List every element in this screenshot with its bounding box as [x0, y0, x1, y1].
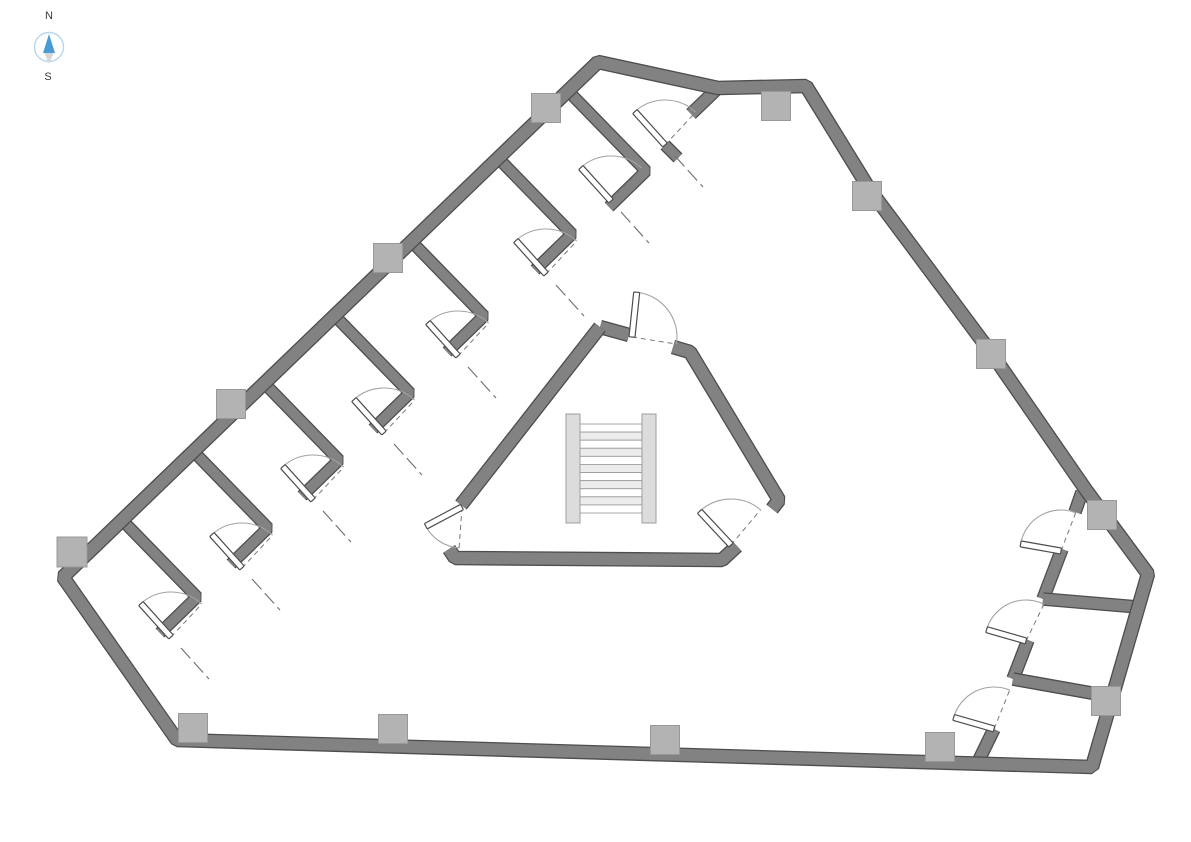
compass-needle-south-icon — [45, 53, 54, 64]
core-door-north-leaf — [629, 292, 640, 337]
room-door-3-threshold-line — [323, 511, 351, 542]
core-door-west-closed-dash — [459, 507, 462, 548]
se-room-door-3-swing-arc — [954, 687, 1010, 717]
column-marker-1 — [532, 94, 561, 123]
se-room-door-2-swing-arc — [987, 600, 1044, 630]
floor-plan-page: N S — [0, 0, 1191, 842]
column-marker-5 — [1088, 501, 1117, 530]
room-door-8-swing-arc — [635, 100, 696, 112]
column-marker-3 — [853, 182, 882, 211]
room-door-7-leaf — [579, 166, 614, 203]
floor-plan-canvas — [0, 0, 1191, 842]
wall-peak-room-door-stub — [665, 145, 678, 158]
stair-tread — [580, 505, 642, 513]
stair-stringer-left — [566, 414, 580, 523]
column-marker-8 — [651, 726, 680, 755]
se-room-door-3-leaf — [953, 715, 995, 732]
stair-tread — [580, 424, 642, 432]
room-door-6-threshold-line — [556, 285, 584, 316]
column-marker-10 — [179, 714, 208, 743]
compass: N S — [27, 6, 73, 89]
column-marker-13 — [374, 244, 403, 273]
column-marker-9 — [379, 715, 408, 744]
compass-north-label: N — [45, 10, 53, 22]
stair-stringer-right — [642, 414, 656, 523]
column-marker-7 — [926, 733, 955, 762]
room-door-1-threshold-line — [181, 648, 209, 679]
se-room-door-2-closed-dash — [1026, 604, 1044, 641]
room-door-4-threshold-line — [394, 444, 422, 475]
stair-tread — [580, 481, 642, 489]
core-door-west-swing-arc — [426, 526, 459, 548]
wall-core-east — [673, 347, 779, 509]
room-door-8-closed-dash — [665, 112, 696, 145]
column-marker-6 — [1092, 687, 1121, 716]
se-room-door-2-leaf — [986, 627, 1027, 644]
core-door-south-leaf — [697, 509, 733, 547]
core-door-north-swing-arc — [637, 292, 677, 344]
stair-tread — [580, 473, 642, 481]
column-marker-11 — [57, 537, 87, 567]
se-room-door-1-closed-dash — [1061, 513, 1076, 551]
column-marker-12 — [217, 390, 246, 419]
stair-tread — [580, 456, 642, 464]
stair-tread — [580, 464, 642, 472]
room-door-7-threshold-line — [621, 212, 649, 243]
column-marker-2 — [762, 92, 791, 121]
column-marker-4 — [977, 340, 1006, 369]
core-door-west-leaf — [424, 504, 463, 529]
core-door-north-closed-dash — [632, 337, 676, 344]
core-door-south-swing-arc — [700, 499, 761, 511]
se-room-door-3-closed-dash — [994, 690, 1010, 729]
stair-tread — [580, 432, 642, 440]
room-door-2-threshold-line — [252, 579, 280, 610]
se-room-door-1-swing-arc — [1021, 510, 1076, 544]
room-door-5-threshold-line — [468, 367, 496, 398]
stair-tread — [580, 497, 642, 505]
compass-south-label: S — [44, 71, 51, 83]
core-door-south-closed-dash — [731, 510, 761, 545]
room-door-8-threshold-line — [675, 156, 703, 187]
stair-tread — [580, 489, 642, 497]
se-room-door-1-leaf — [1020, 541, 1061, 554]
stair-tread — [580, 440, 642, 448]
stair-tread — [580, 448, 642, 456]
room-door-8-leaf — [633, 110, 668, 147]
compass-needle-north-icon — [43, 34, 55, 53]
